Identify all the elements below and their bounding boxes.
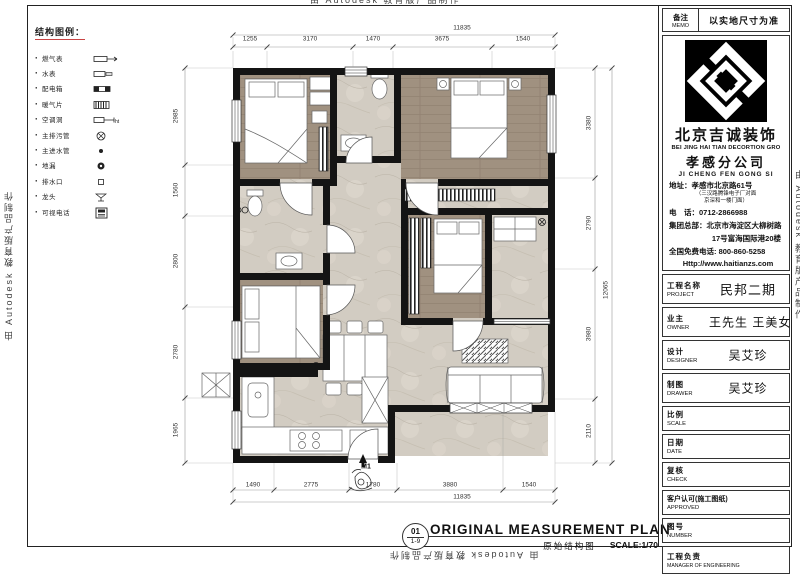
row-label-cn: 客户认可(施工图纸) <box>667 494 785 504</box>
sheet-number: 01 <box>411 527 420 537</box>
ac-outdoor-unit <box>202 373 230 397</box>
row-label-cn: 比例 <box>667 409 785 420</box>
dim-bottom-segment-3: 3880 <box>443 482 457 489</box>
row-label-cn: 图号 <box>667 521 785 532</box>
titleblock-row-designer: 设计DESIGNER吴艾珍 <box>662 340 790 370</box>
autodesk-watermark-right: 由 Autodesk 教育版产品制作 <box>793 170 800 321</box>
legend-title: 结构图例： <box>35 25 85 40</box>
ac-hole-icon: ht <box>93 113 123 125</box>
legend-item: 地漏 <box>35 158 131 173</box>
row-value: 吴艾珍 <box>709 379 787 396</box>
legend-item-label: 地漏 <box>42 160 56 170</box>
dim-top-segment-2: 1470 <box>366 36 380 43</box>
row-value: 王先生 王美女 <box>709 313 787 330</box>
address-line: 地址：孝感市北京路61号 <box>665 180 787 191</box>
washbasin-bath2 <box>276 253 302 269</box>
row-label-en: NUMBER <box>667 533 785 539</box>
branch-name: 孝感分公司 <box>665 152 787 171</box>
titleblock-row-scale: 比例SCALE <box>662 406 790 431</box>
dim-top-segment-1: 3170 <box>303 36 317 43</box>
titleblock-row-manager-of-engineering: 工程负责MANAGER OF ENGINEERING <box>662 546 790 574</box>
legend-item-label: 主进水管 <box>42 145 70 155</box>
bay-window-seat <box>450 403 532 413</box>
legend-item: 主进水管 <box>35 142 131 157</box>
main-water-pipe-icon <box>93 144 123 156</box>
dim-bottom-overall: 11835 <box>453 494 471 501</box>
legend-item-label: 水表 <box>42 68 56 78</box>
company-name-cn: 北京吉诚装饰 <box>665 124 787 145</box>
address-note: （三汉路腾锋电子厂对面 京深和一楼门面） <box>665 191 787 205</box>
memo-label-cn: 备注 <box>673 12 688 23</box>
row-value: 吴艾珍 <box>709 346 787 363</box>
radiator-icon <box>93 98 123 110</box>
dim-left-segment-4: 1965 <box>173 423 180 437</box>
titleblock-row-check: 复核CHECK <box>662 462 790 487</box>
legend-item-label: 燃气表 <box>42 53 63 63</box>
legend-item-label: 配电箱 <box>42 83 63 93</box>
legend-item: 暖气片 <box>35 96 131 111</box>
entry-door-label: M1 <box>361 464 371 471</box>
legend-list: 燃气表水表配电箱暖气片空调洞ht主排污管主进水管地漏排水口龙头可视电话 <box>35 50 131 219</box>
balcony-cabinet <box>494 217 536 241</box>
titleblock-row-owner: 业主OWNER王先生 王美女 <box>662 307 790 337</box>
legend-item-label: 龙头 <box>42 191 56 201</box>
drawing-title-cn: 原始结构图 <box>543 540 596 552</box>
dim-bottom-segment-0: 1490 <box>246 482 260 489</box>
hq-line: 集团总部：北京市海淀区大柳树路 <box>665 220 787 231</box>
row-label-en: CHECK <box>667 477 785 483</box>
legend-item-label: 可视电话 <box>42 207 70 217</box>
dim-left-segment-3: 2780 <box>173 345 180 359</box>
branch-pinyin: JI CHENG FEN GONG SI <box>665 171 787 178</box>
toilet-bath1 <box>371 72 388 99</box>
dim-top-segment-4: 1540 <box>516 36 530 43</box>
floor-drain-icon <box>93 159 123 171</box>
water-meter-icon <box>93 67 123 79</box>
legend-item: 空调洞ht <box>35 112 131 127</box>
legend-item: 龙头 <box>35 189 131 204</box>
hq-line2: 17号富海国际港20楼 <box>665 233 787 244</box>
drawing-sheet: { "watermark": { "text": "由 Autodesk 教育版… <box>0 0 800 568</box>
legend-item-label: 空调洞 <box>42 114 63 124</box>
drawing-subtitle: 原始结构图 SCALE:1/70 <box>430 540 658 552</box>
titleblock-row-project: 工程名称PROJECT民邦二期 <box>662 274 790 304</box>
dim-right-segment-0: 3380 <box>586 116 593 130</box>
memo-value: 以实地尺寸为准 <box>699 9 789 31</box>
legend-item: 可视电话 <box>35 204 131 219</box>
legend-item: 配电箱 <box>35 81 131 96</box>
floor-plan-svg <box>150 25 640 520</box>
main-sewage-pipe-icon <box>93 129 123 141</box>
bed-mid-left <box>242 286 320 358</box>
dim-right-segment-1: 2790 <box>586 216 593 230</box>
dim-left-segment-2: 2800 <box>173 254 180 268</box>
titleblock-row-drawer: 制图DRAWER吴艾珍 <box>662 373 790 403</box>
dim-right-segment-2: 3980 <box>586 327 593 341</box>
dim-bottom-segment-4: 1540 <box>522 482 536 489</box>
row-label-en: APPROVED <box>667 505 785 511</box>
drawing-scale: SCALE:1/70 <box>610 540 658 552</box>
row-label-en: SCALE <box>667 421 785 427</box>
legend-item: 燃气表 <box>35 50 131 65</box>
website: Http://www.haitianzs.com <box>665 259 787 268</box>
legend-item: 水表 <box>35 65 131 80</box>
dim-bottom-segment-1: 2775 <box>304 482 318 489</box>
dim-right-segment-3: 2110 <box>586 424 593 438</box>
memo-row: 备注 MEMO 以实地尺寸为准 <box>662 8 790 32</box>
bed-top-left <box>245 79 307 163</box>
row-label-en: DATE <box>667 449 785 455</box>
dim-top-segment-0: 1255 <box>243 36 257 43</box>
legend-item: 排水口 <box>35 173 131 188</box>
company-name-en: BEI JING HAI TIAN DECORTION GRO <box>665 145 787 151</box>
dim-left-segment-1: 1560 <box>173 183 180 197</box>
distribution-box-icon <box>93 82 123 94</box>
faucet-icon <box>93 190 123 202</box>
videophone-icon <box>93 206 123 218</box>
memo-label: 备注 MEMO <box>663 9 699 31</box>
dim-bottom-segment-2: 1780 <box>366 482 380 489</box>
dim-left-segment-0: 2985 <box>173 109 180 123</box>
company-panel: 北京吉诚装饰 BEI JING HAI TIAN DECORTION GRO 孝… <box>662 35 790 271</box>
svg-text:ht: ht <box>115 119 120 125</box>
dim-top-segment-3: 3675 <box>435 36 449 43</box>
titleblock-separator <box>658 5 659 547</box>
row-label-cn: 日期 <box>667 437 785 448</box>
memo-label-en: MEMO <box>672 23 689 29</box>
row-label-cn: 工程负责 <box>667 551 785 562</box>
titleblock-row-date: 日期DATE <box>662 434 790 459</box>
company-logo <box>685 40 767 122</box>
floor-plan <box>150 25 640 520</box>
legend-item-label: 排水口 <box>42 176 63 186</box>
row-label-cn: 复核 <box>667 465 785 476</box>
bed-mid-right <box>434 219 482 293</box>
sheet-index: 1-9 <box>407 537 424 546</box>
hotline-line: 全国免费电话: 800-860-5258 <box>665 246 787 257</box>
legend-item: 主排污管 <box>35 127 131 142</box>
row-value: 民邦二期 <box>709 279 787 298</box>
legend-item-label: 主排污管 <box>42 130 70 140</box>
titleblock-row-approved: 客户认可(施工图纸)APPROVED <box>662 490 790 515</box>
title-block: 备注 MEMO 以实地尺寸为准 北京吉诚装饰 BEI JING HAI TIAN… <box>662 8 790 574</box>
sheet-number-bubble: 01 1-9 <box>402 523 429 550</box>
drawing-title-en: ORIGINAL MEASUREMENT PLAN <box>430 522 658 537</box>
sofa <box>446 367 544 403</box>
autodesk-watermark-left: 由 Autodesk 教育版产品制作 <box>2 190 15 341</box>
dim-right-overall: 12065 <box>603 281 610 299</box>
drain-outlet-icon <box>93 175 123 187</box>
titleblock-row-number: 图号NUMBER <box>662 518 790 543</box>
dim-top-overall: 11835 <box>453 25 471 32</box>
structure-legend: 结构图例： 燃气表水表配电箱暖气片空调洞ht主排污管主进水管地漏排水口龙头可视电… <box>35 22 131 219</box>
toilet-bath2 <box>247 190 263 216</box>
titleblock-rows: 工程名称PROJECT民邦二期业主OWNER王先生 王美女设计DESIGNER吴… <box>662 274 790 574</box>
legend-item-label: 暖气片 <box>42 99 63 109</box>
phone-line: 电 话：0712-2866988 <box>665 207 787 218</box>
gas-meter-icon <box>93 52 123 64</box>
